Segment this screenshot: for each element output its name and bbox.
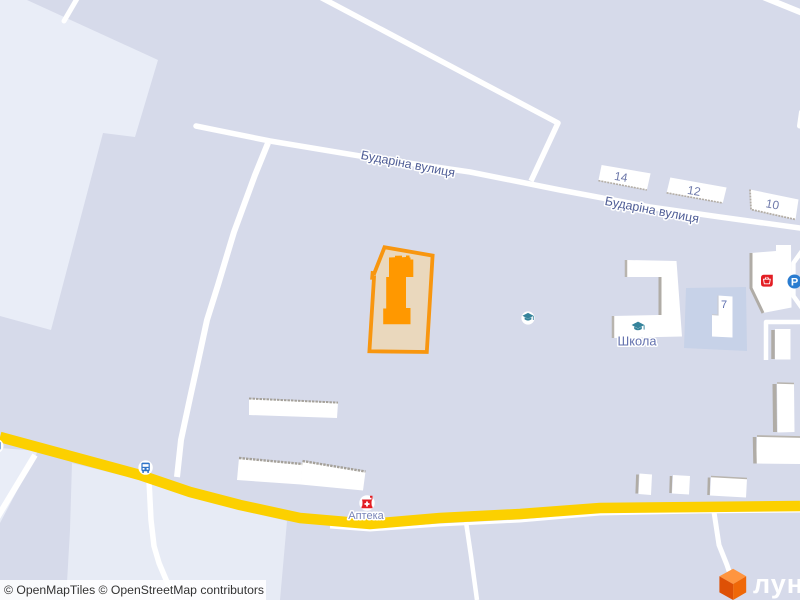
svg-text:лун: лун [753, 569, 800, 599]
svg-text:P: P [791, 277, 798, 289]
svg-text:14: 14 [613, 169, 629, 185]
svg-text:© OpenMapTiles © OpenStreetMap: © OpenMapTiles © OpenStreetMap contribut… [4, 583, 264, 597]
svg-text:7: 7 [721, 299, 727, 311]
svg-text:Аптека: Аптека [348, 510, 384, 522]
svg-text:Школа: Школа [618, 334, 658, 349]
svg-text:12: 12 [686, 183, 702, 199]
